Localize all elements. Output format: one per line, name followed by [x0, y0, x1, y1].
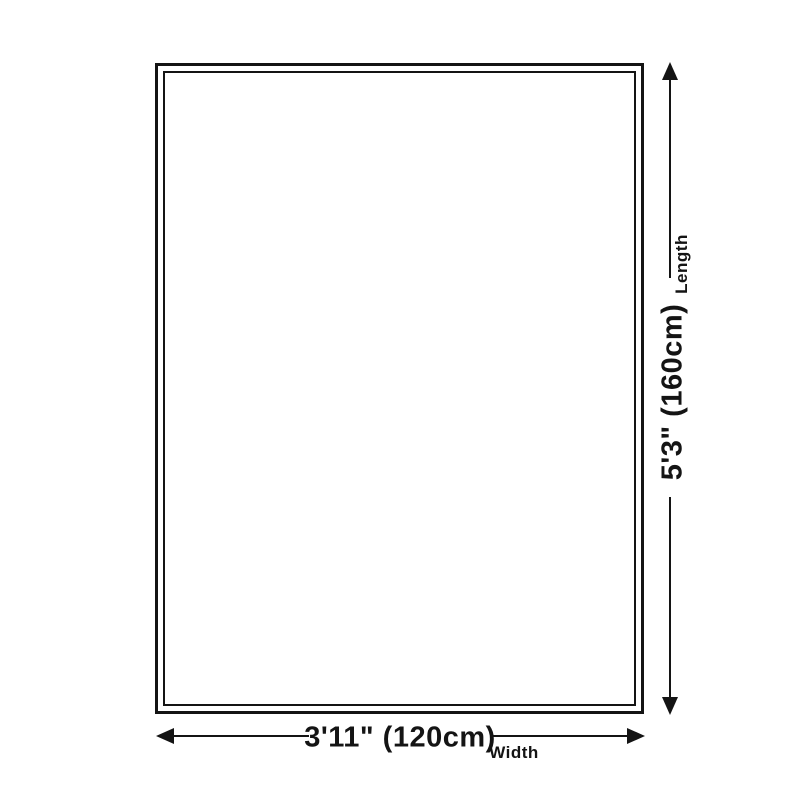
arrow-down-icon: [662, 697, 678, 715]
width-label: Width: [489, 743, 539, 763]
rug-outer-border: [155, 63, 644, 714]
width-value: 3'11" (120cm): [304, 722, 496, 755]
width-arrow-line-left: [170, 735, 309, 737]
width-arrow-line-right: [491, 735, 628, 737]
length-arrow-line-bottom: [669, 497, 671, 698]
length-label: Length: [672, 234, 692, 294]
arrow-right-icon: [627, 728, 645, 744]
length-arrow-line-top: [669, 78, 671, 278]
rug-size-diagram: Length 5'3" (160cm) 3'11" (120cm) Width: [0, 0, 800, 800]
rug-inner-border: [163, 71, 636, 706]
length-value: 5'3" (160cm): [657, 304, 690, 481]
